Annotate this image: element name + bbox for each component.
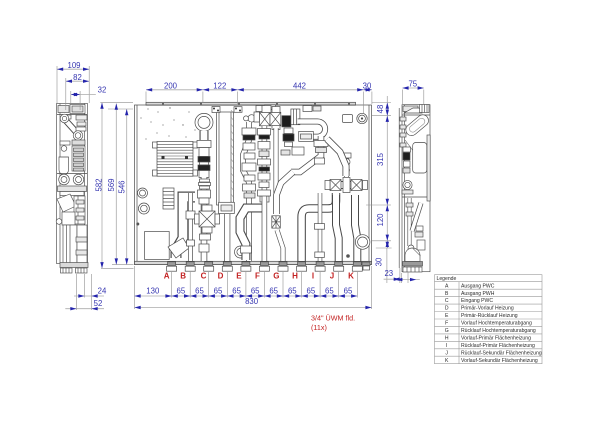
svg-text:65: 65 — [325, 287, 334, 296]
svg-text:Vorlauf-Sekundär Flächenheizun: Vorlauf-Sekundär Flächenheizung — [461, 358, 538, 364]
svg-text:30: 30 — [363, 81, 372, 90]
svg-text:122: 122 — [213, 81, 226, 90]
svg-text:120: 120 — [376, 213, 385, 227]
svg-text:30: 30 — [375, 257, 384, 266]
svg-text:130: 130 — [146, 287, 160, 296]
svg-text:B: B — [445, 291, 449, 297]
svg-text:200: 200 — [164, 81, 178, 90]
svg-text:65: 65 — [344, 287, 353, 296]
svg-text:23: 23 — [384, 269, 393, 278]
svg-text:C: C — [201, 272, 207, 281]
svg-text:Rücklauf Hochtemperaturabgang: Rücklauf Hochtemperaturabgang — [461, 328, 536, 334]
svg-text:Rücklauf-Sekundär Flächenheizu: Rücklauf-Sekundär Flächenheizung — [461, 350, 542, 356]
svg-text:K: K — [348, 272, 354, 281]
svg-text:F: F — [255, 272, 260, 281]
svg-text:48: 48 — [376, 105, 385, 114]
svg-text:Primär-Rücklauf Heizung: Primär-Rücklauf Heizung — [461, 313, 518, 319]
svg-text:C: C — [445, 298, 449, 304]
svg-text:52: 52 — [94, 299, 103, 308]
svg-text:442: 442 — [293, 81, 306, 90]
svg-text:I: I — [312, 272, 314, 281]
svg-text:Rücklauf-Primär Flächenheizung: Rücklauf-Primär Flächenheizung — [461, 343, 535, 349]
svg-text:24: 24 — [98, 286, 107, 295]
svg-text:65: 65 — [269, 287, 278, 296]
svg-text:A: A — [164, 272, 170, 281]
svg-text:A: A — [445, 283, 449, 289]
svg-text:F: F — [445, 321, 448, 327]
svg-text:65: 65 — [307, 287, 316, 296]
svg-text:Legende: Legende — [437, 276, 457, 282]
svg-text:32: 32 — [98, 86, 107, 95]
svg-text:H: H — [292, 272, 298, 281]
svg-text:3/4" ÜWM fld.: 3/4" ÜWM fld. — [311, 314, 355, 323]
svg-text:E: E — [236, 272, 242, 281]
svg-text:B: B — [180, 272, 186, 281]
svg-text:65: 65 — [251, 287, 260, 296]
svg-text:546: 546 — [118, 180, 127, 193]
svg-text:D: D — [445, 306, 449, 312]
svg-text:E: E — [445, 313, 449, 319]
svg-text:Eingang PWC: Eingang PWC — [461, 298, 493, 304]
svg-text:H: H — [445, 336, 449, 342]
svg-text:315: 315 — [376, 152, 385, 166]
svg-text:65: 65 — [214, 287, 223, 296]
svg-text:569: 569 — [107, 178, 116, 191]
svg-text:(11x): (11x) — [311, 323, 327, 332]
svg-text:K: K — [445, 358, 449, 364]
svg-text:Primär-Vorlauf Heizung: Primär-Vorlauf Heizung — [461, 306, 514, 312]
svg-text:Vorlauf Hochtemperaturabgang: Vorlauf Hochtemperaturabgang — [461, 321, 532, 327]
svg-text:D: D — [218, 272, 224, 281]
svg-text:G: G — [273, 272, 279, 281]
svg-text:J: J — [330, 272, 334, 281]
svg-text:582: 582 — [95, 178, 104, 191]
svg-text:65: 65 — [232, 287, 241, 296]
svg-text:G: G — [445, 328, 449, 334]
svg-text:65: 65 — [288, 287, 297, 296]
svg-text:830: 830 — [245, 297, 259, 306]
svg-text:J: J — [445, 350, 448, 356]
svg-text:I: I — [446, 343, 447, 349]
svg-text:65: 65 — [177, 287, 186, 296]
svg-text:109: 109 — [67, 61, 80, 70]
svg-text:Ausgang PWH: Ausgang PWH — [461, 291, 495, 297]
svg-text:Ausgang PWC: Ausgang PWC — [461, 283, 495, 289]
svg-text:82: 82 — [73, 73, 82, 82]
svg-text:75: 75 — [408, 80, 417, 89]
svg-text:65: 65 — [195, 287, 204, 296]
svg-text:Vorlauf-Primär Flächenheizung: Vorlauf-Primär Flächenheizung — [461, 336, 531, 342]
